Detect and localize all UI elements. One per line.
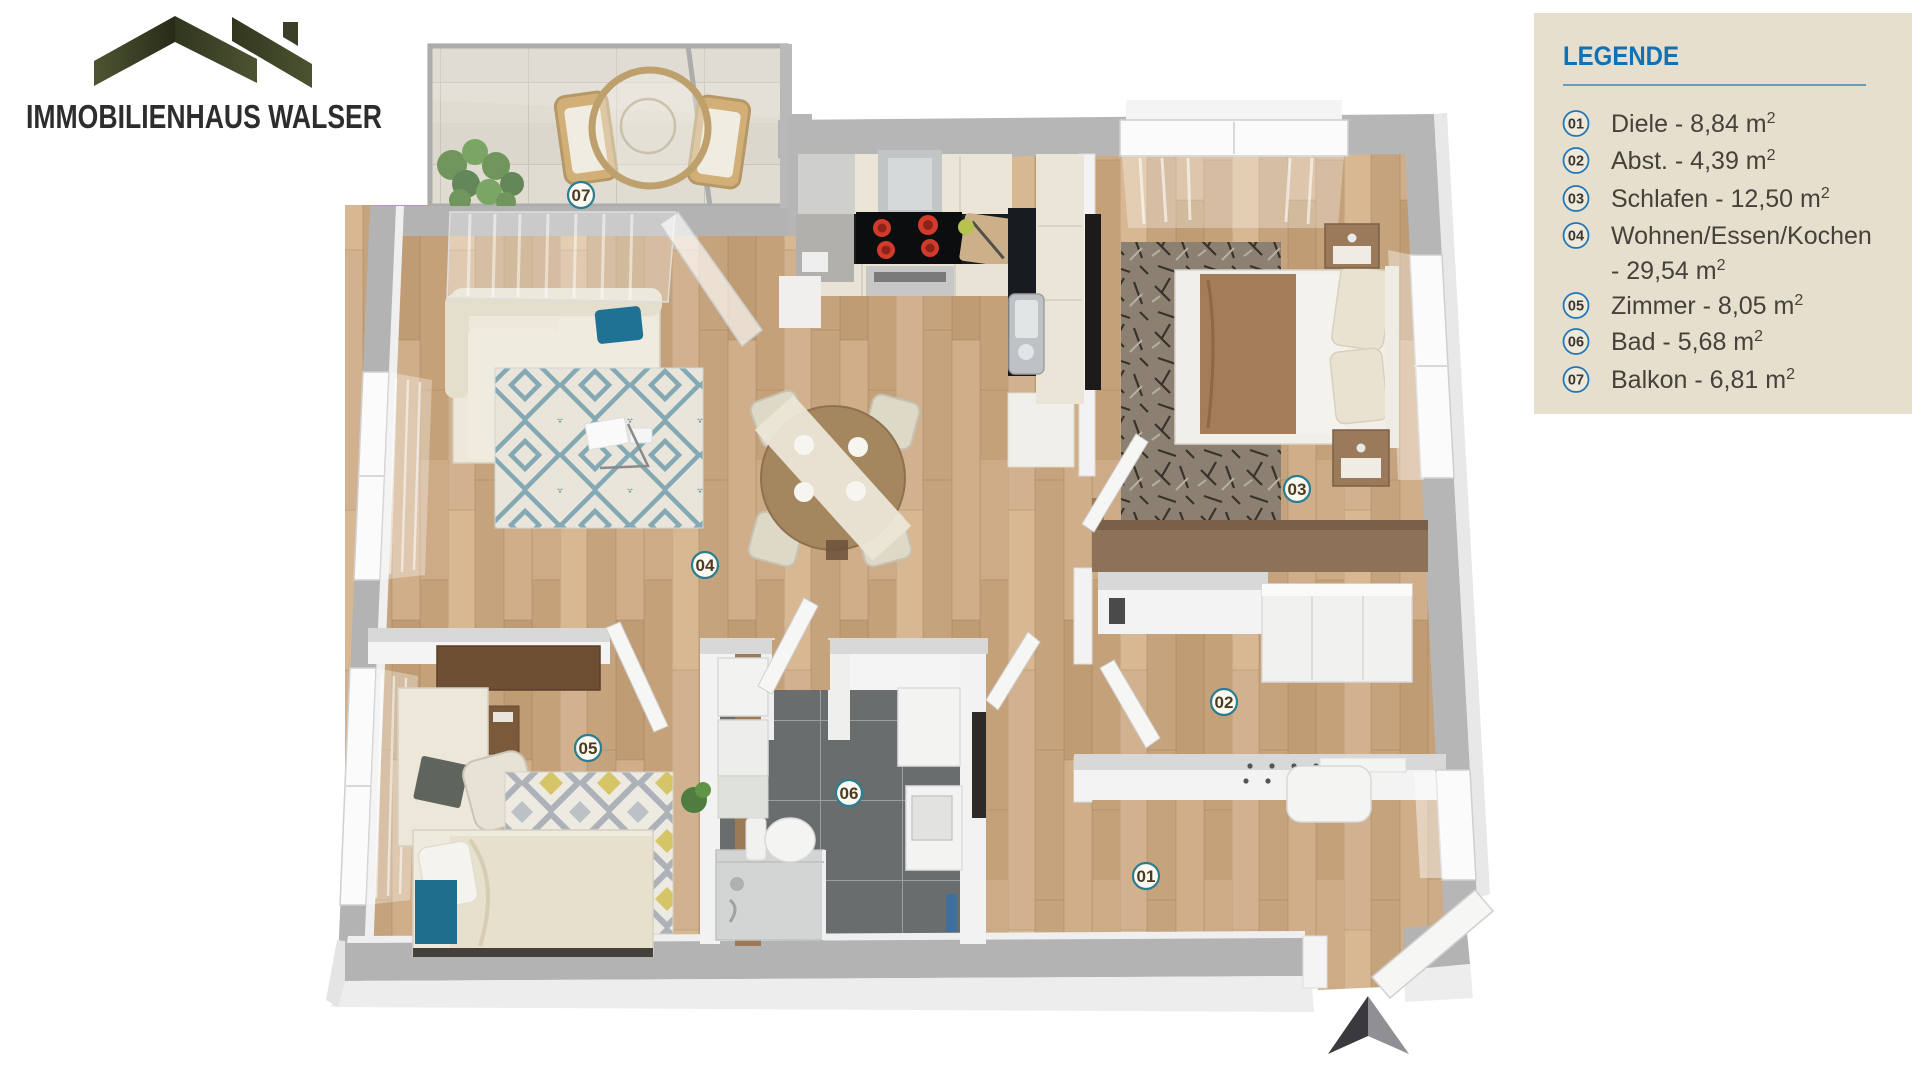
svg-text:Schlafen - 12,50 m2: Schlafen - 12,50 m2 xyxy=(1611,185,1830,213)
svg-text:Wohnen/Essen/Kochen: Wohnen/Essen/Kochen xyxy=(1611,222,1872,250)
svg-text:05: 05 xyxy=(579,739,598,758)
svg-text:Zimmer - 8,05 m2: Zimmer - 8,05 m2 xyxy=(1611,292,1803,320)
svg-text:04: 04 xyxy=(696,556,715,575)
svg-text:04: 04 xyxy=(1568,229,1584,245)
svg-text:02: 02 xyxy=(1215,693,1234,712)
svg-text:07: 07 xyxy=(1568,373,1584,389)
svg-text:Diele - 8,84 m2: Diele - 8,84 m2 xyxy=(1611,110,1776,138)
svg-text:02: 02 xyxy=(1568,154,1584,170)
svg-text:LEGENDE: LEGENDE xyxy=(1563,41,1679,71)
svg-text:Bad - 5,68 m2: Bad - 5,68 m2 xyxy=(1611,328,1763,356)
svg-text:05: 05 xyxy=(1568,299,1584,315)
svg-text:06: 06 xyxy=(1568,335,1584,351)
svg-text:03: 03 xyxy=(1288,480,1307,499)
svg-text:Abst. - 4,39 m2: Abst. - 4,39 m2 xyxy=(1611,147,1776,175)
svg-text:Balkon - 6,81 m2: Balkon - 6,81 m2 xyxy=(1611,366,1795,394)
svg-text:07: 07 xyxy=(572,186,591,205)
svg-text:01: 01 xyxy=(1137,867,1156,886)
svg-text:03: 03 xyxy=(1568,192,1584,208)
svg-text:- 29,54 m2: - 29,54 m2 xyxy=(1611,257,1726,285)
svg-text:IMMOBILIENHAUS WALSER: IMMOBILIENHAUS WALSER xyxy=(26,98,382,135)
svg-text:06: 06 xyxy=(840,784,859,803)
svg-text:01: 01 xyxy=(1568,117,1584,133)
